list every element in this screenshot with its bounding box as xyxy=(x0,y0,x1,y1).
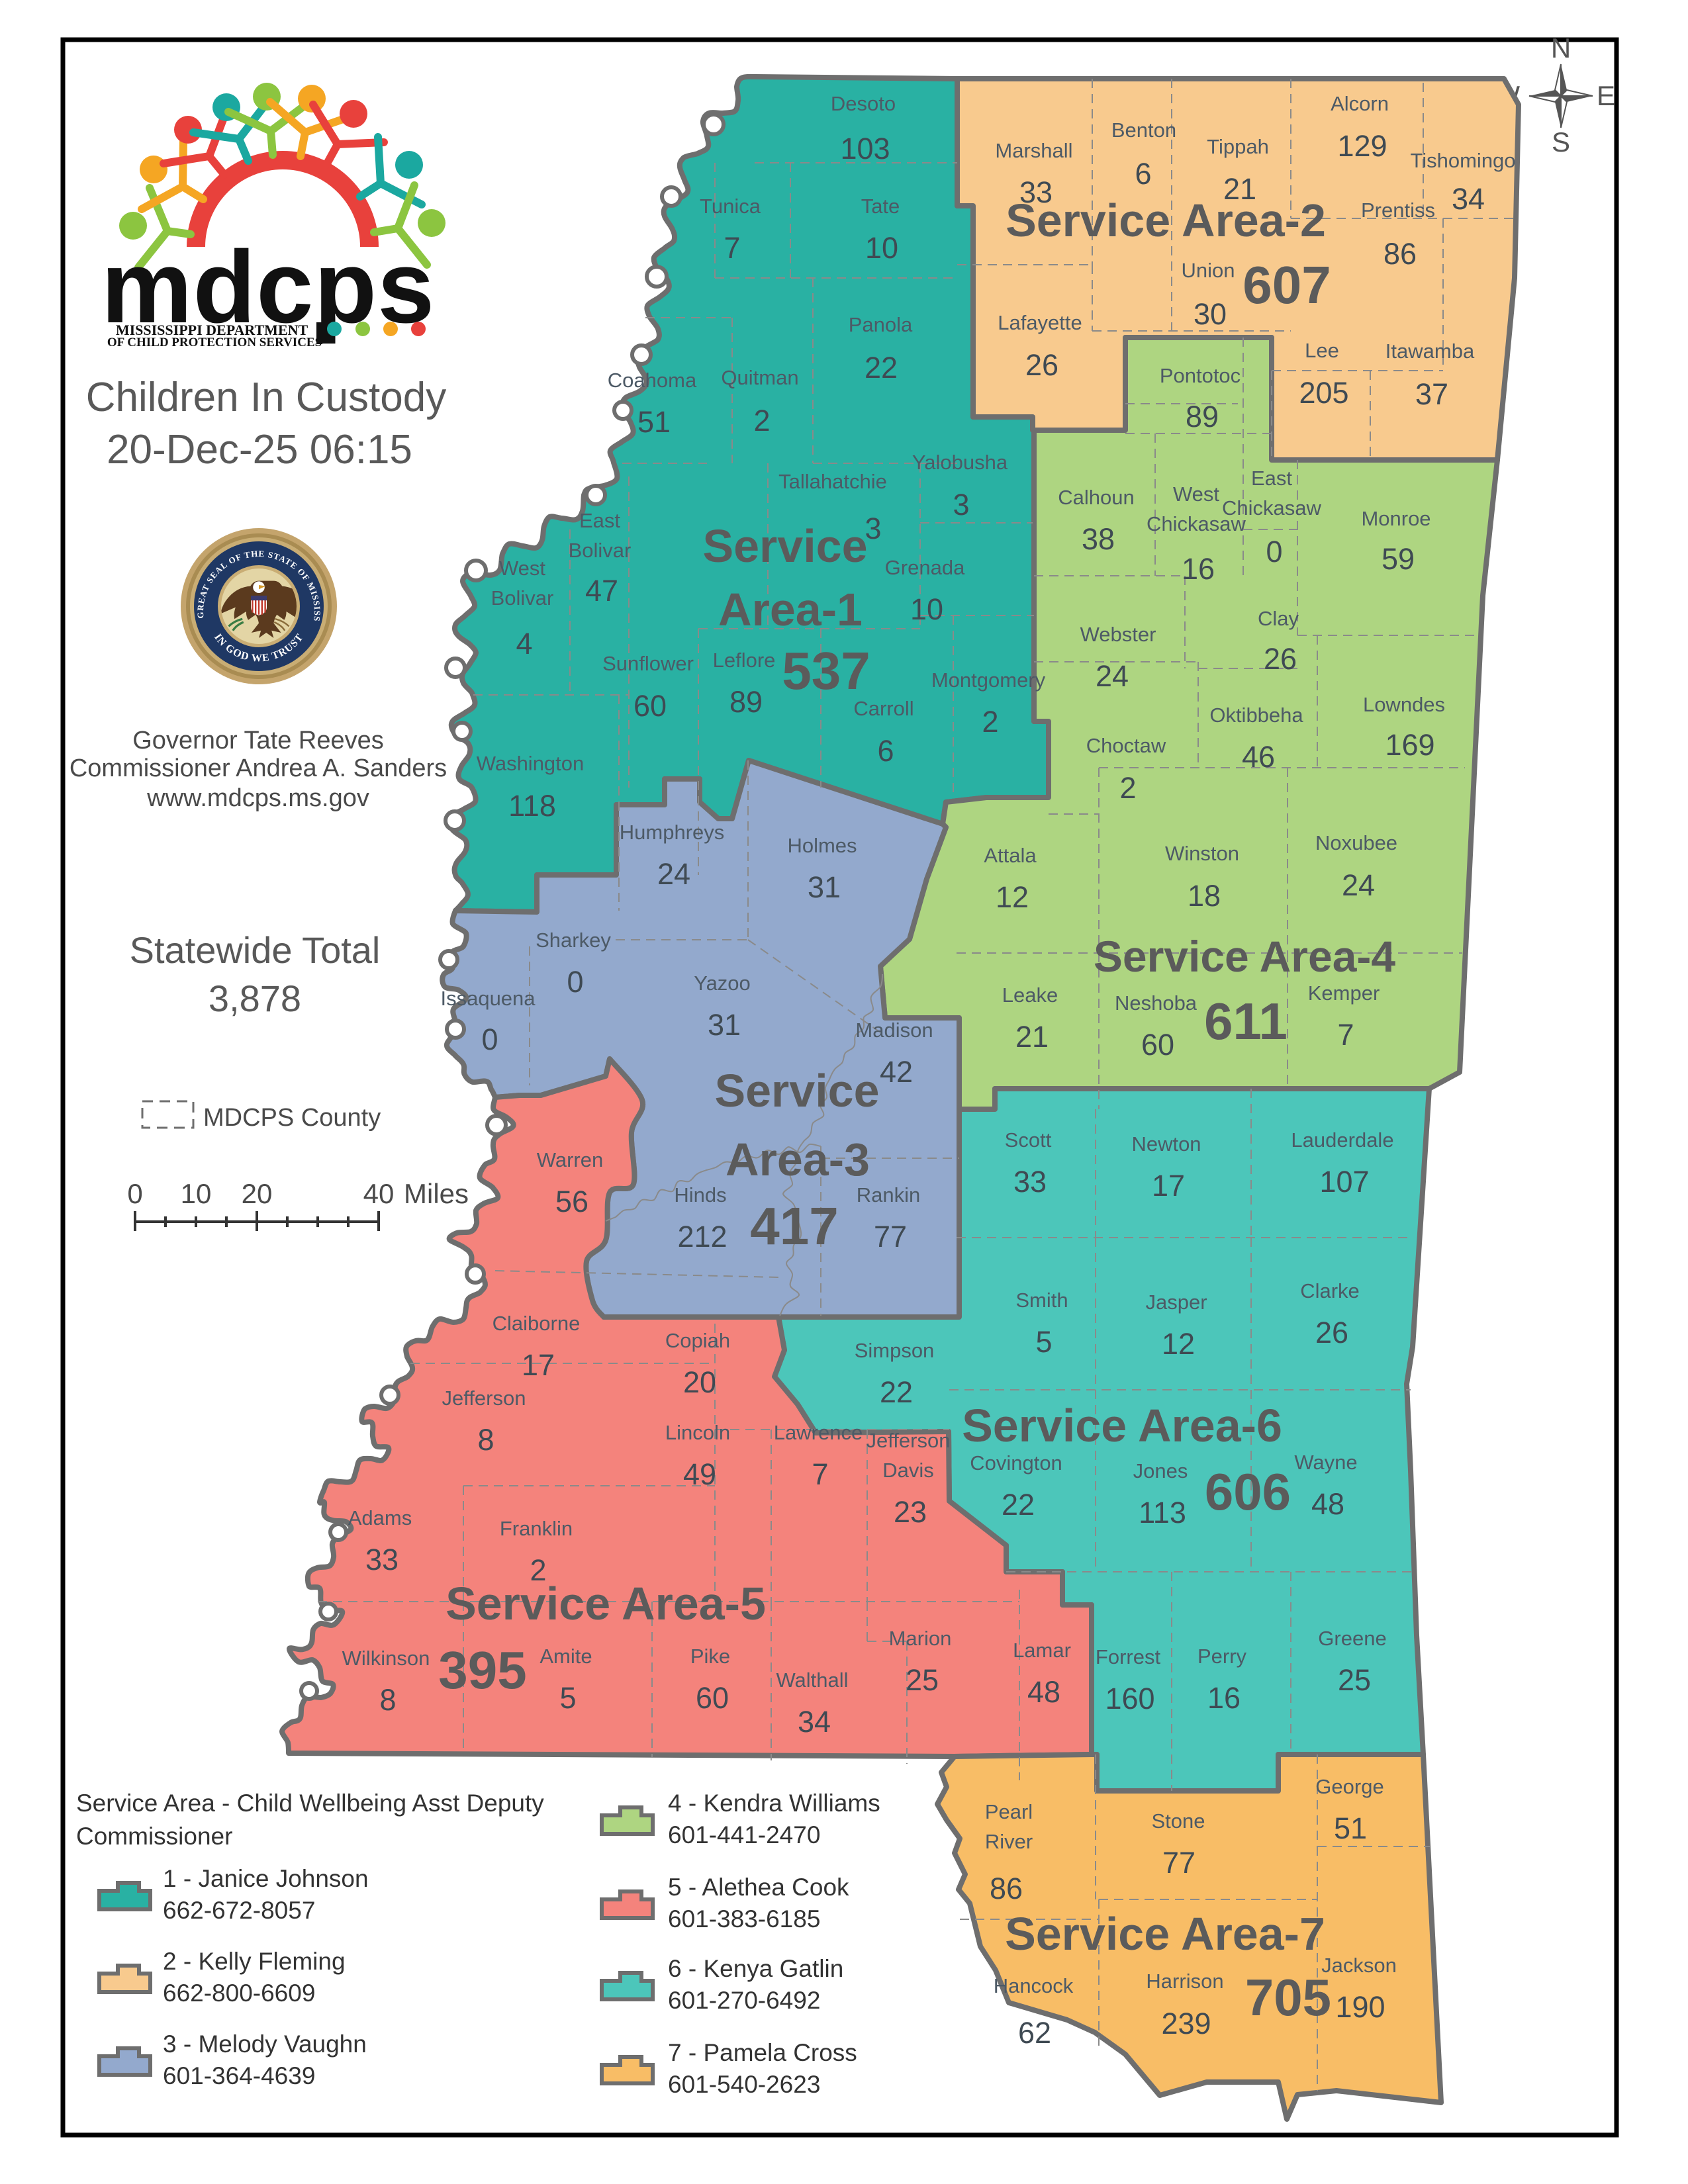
svg-text:20: 20 xyxy=(242,1178,273,1209)
svg-text:Pontotoc: Pontotoc xyxy=(1160,364,1241,387)
svg-text:51: 51 xyxy=(637,405,671,439)
svg-text:Rankin: Rankin xyxy=(857,1183,921,1206)
svg-text:601-540-2623: 601-540-2623 xyxy=(668,2071,820,2098)
svg-text:Service: Service xyxy=(714,1065,879,1116)
svg-text:Kemper: Kemper xyxy=(1308,981,1380,1005)
svg-text:17: 17 xyxy=(522,1348,555,1382)
svg-text:Pike: Pike xyxy=(690,1645,730,1668)
svg-text:40: 40 xyxy=(363,1178,395,1209)
svg-text:129: 129 xyxy=(1337,129,1387,163)
svg-text:E: E xyxy=(1597,80,1615,111)
svg-text:Lincoln: Lincoln xyxy=(665,1421,730,1444)
svg-text:20: 20 xyxy=(683,1365,716,1399)
svg-text:Itawamba: Itawamba xyxy=(1385,340,1475,363)
svg-text:12: 12 xyxy=(1162,1327,1195,1361)
svg-text:Webster: Webster xyxy=(1080,623,1156,646)
svg-text:Sharkey: Sharkey xyxy=(536,929,611,952)
svg-text:Commissioner Andrea A. Sanders: Commissioner Andrea A. Sanders xyxy=(70,754,447,782)
svg-text:Leflore: Leflore xyxy=(713,649,776,672)
svg-text:37: 37 xyxy=(1415,377,1448,411)
svg-text:25: 25 xyxy=(906,1663,939,1697)
svg-text:0: 0 xyxy=(127,1178,142,1209)
svg-text:49: 49 xyxy=(683,1457,716,1491)
svg-text:17: 17 xyxy=(1152,1169,1185,1203)
svg-text:Jones: Jones xyxy=(1133,1459,1188,1482)
svg-text:3,878: 3,878 xyxy=(209,978,301,1019)
svg-text:Statewide Total: Statewide Total xyxy=(130,929,381,971)
svg-text:5: 5 xyxy=(1035,1325,1052,1359)
svg-text:662-672-8057: 662-672-8057 xyxy=(163,1897,315,1924)
svg-text:48: 48 xyxy=(1027,1675,1060,1709)
svg-text:Sunflower: Sunflower xyxy=(602,652,694,675)
svg-text:Holmes: Holmes xyxy=(787,834,857,857)
svg-text:Oktibbeha: Oktibbeha xyxy=(1209,704,1303,727)
svg-text:18: 18 xyxy=(1188,879,1221,913)
svg-text:Lauderdale: Lauderdale xyxy=(1291,1128,1393,1152)
svg-text:Simpson: Simpson xyxy=(855,1339,935,1362)
svg-text:4: 4 xyxy=(516,627,532,660)
svg-text:26: 26 xyxy=(1264,642,1297,676)
svg-text:Hancock: Hancock xyxy=(994,1974,1074,1997)
svg-text:Newton: Newton xyxy=(1131,1132,1201,1156)
svg-text:Carroll: Carroll xyxy=(853,697,914,720)
svg-text:601-364-4639: 601-364-4639 xyxy=(163,2062,315,2089)
svg-text:3 - Melody Vaughn: 3 - Melody Vaughn xyxy=(163,2030,367,2058)
svg-text:22: 22 xyxy=(880,1375,913,1409)
svg-text:42: 42 xyxy=(880,1055,913,1089)
svg-text:24: 24 xyxy=(657,857,690,891)
svg-text:Claiborne: Claiborne xyxy=(492,1312,581,1335)
svg-text:8: 8 xyxy=(379,1683,396,1717)
svg-text:Miles: Miles xyxy=(404,1178,469,1209)
svg-text:607: 607 xyxy=(1243,255,1331,314)
svg-text:118: 118 xyxy=(508,789,556,823)
svg-text:East: East xyxy=(1251,467,1292,490)
svg-text:77: 77 xyxy=(1162,1846,1196,1880)
svg-text:Jackson: Jackson xyxy=(1321,1954,1397,1977)
svg-text:395: 395 xyxy=(438,1641,526,1700)
svg-text:24: 24 xyxy=(1342,868,1375,902)
svg-text:MDCPS County: MDCPS County xyxy=(203,1104,381,1132)
svg-text:705: 705 xyxy=(1245,1968,1331,2026)
svg-text:S: S xyxy=(1552,126,1570,158)
svg-text:190: 190 xyxy=(1335,1990,1385,2024)
svg-text:Grenada: Grenada xyxy=(885,556,965,579)
svg-text:10: 10 xyxy=(865,231,898,265)
svg-text:10: 10 xyxy=(181,1178,212,1209)
svg-text:Service Area - Child Wellbeing: Service Area - Child Wellbeing Asst Depu… xyxy=(76,1790,544,1817)
svg-text:22: 22 xyxy=(865,351,898,385)
svg-text:47: 47 xyxy=(585,574,618,608)
svg-text:Wilkinson: Wilkinson xyxy=(342,1647,430,1670)
svg-text:Franklin: Franklin xyxy=(500,1517,573,1540)
svg-text:Forrest: Forrest xyxy=(1096,1645,1161,1668)
svg-text:0: 0 xyxy=(481,1023,498,1056)
svg-text:Benton: Benton xyxy=(1111,118,1176,142)
svg-text:86: 86 xyxy=(990,1872,1023,1905)
svg-text:34: 34 xyxy=(798,1705,831,1739)
svg-text:West: West xyxy=(1173,482,1219,506)
svg-text:601-270-6492: 601-270-6492 xyxy=(668,1987,820,2014)
svg-text:George: George xyxy=(1315,1775,1383,1798)
svg-text:6: 6 xyxy=(877,734,894,768)
svg-text:Service Area-5: Service Area-5 xyxy=(445,1578,766,1629)
svg-text:Quitman: Quitman xyxy=(721,366,798,389)
svg-text:Leake: Leake xyxy=(1002,983,1058,1007)
svg-text:Warren: Warren xyxy=(537,1148,603,1171)
svg-text:Bolivar: Bolivar xyxy=(569,539,632,562)
svg-text:Yazoo: Yazoo xyxy=(694,972,751,995)
svg-text:Madison: Madison xyxy=(855,1019,933,1042)
svg-text:212: 212 xyxy=(677,1220,727,1253)
svg-text:Winston: Winston xyxy=(1165,842,1239,865)
svg-text:Jefferson: Jefferson xyxy=(867,1429,951,1452)
svg-text:33: 33 xyxy=(1013,1165,1047,1199)
svg-text:611: 611 xyxy=(1204,992,1288,1050)
svg-text:Tate: Tate xyxy=(861,195,900,218)
svg-text:West: West xyxy=(499,557,545,580)
svg-text:Service Area-6: Service Area-6 xyxy=(962,1400,1282,1451)
svg-text:239: 239 xyxy=(1161,2007,1211,2040)
svg-text:Amite: Amite xyxy=(539,1645,592,1668)
svg-text:113: 113 xyxy=(1139,1496,1186,1529)
svg-text:62: 62 xyxy=(1018,2016,1051,2050)
svg-text:103: 103 xyxy=(840,132,890,165)
svg-text:7: 7 xyxy=(812,1457,828,1491)
svg-text:60: 60 xyxy=(633,689,667,723)
svg-text:Scott: Scott xyxy=(1005,1128,1052,1152)
svg-text:16: 16 xyxy=(1182,552,1215,586)
svg-text:Tallahatchie: Tallahatchie xyxy=(778,470,887,493)
svg-text:Noxubee: Noxubee xyxy=(1315,831,1397,854)
svg-text:Service Area-7: Service Area-7 xyxy=(1005,1908,1325,1960)
svg-text:10: 10 xyxy=(910,592,943,626)
svg-text:48: 48 xyxy=(1311,1487,1344,1521)
svg-text:56: 56 xyxy=(555,1185,588,1218)
svg-text:417: 417 xyxy=(750,1197,838,1255)
svg-text:Lafayette: Lafayette xyxy=(998,311,1082,334)
svg-text:Tunica: Tunica xyxy=(700,195,761,218)
svg-text:Area-1: Area-1 xyxy=(718,584,863,635)
svg-text:6 - Kenya Gatlin: 6 - Kenya Gatlin xyxy=(668,1955,843,1982)
svg-text:31: 31 xyxy=(808,870,841,904)
svg-text:Clay: Clay xyxy=(1258,607,1299,630)
svg-text:Marion: Marion xyxy=(889,1627,952,1650)
svg-text:38: 38 xyxy=(1082,522,1115,556)
svg-text:25: 25 xyxy=(1338,1663,1371,1697)
svg-text:Commissioner: Commissioner xyxy=(76,1823,232,1850)
svg-text:Lawrence: Lawrence xyxy=(774,1421,863,1444)
svg-text:107: 107 xyxy=(1319,1165,1369,1199)
svg-text:Neshoba: Neshoba xyxy=(1115,991,1197,1015)
svg-text:Humphreys: Humphreys xyxy=(620,821,725,844)
svg-text:Governor Tate Reeves: Governor Tate Reeves xyxy=(132,727,384,754)
svg-text:7: 7 xyxy=(1337,1018,1354,1052)
svg-text:Tippah: Tippah xyxy=(1207,135,1269,158)
svg-text:5 - Alethea Cook: 5 - Alethea Cook xyxy=(668,1874,849,1901)
svg-text:Pearl: Pearl xyxy=(985,1800,1033,1823)
svg-text:Yalobusha: Yalobusha xyxy=(912,451,1008,474)
svg-text:Coahoma: Coahoma xyxy=(608,369,697,392)
svg-text:Calhoun: Calhoun xyxy=(1058,486,1134,509)
svg-text:169: 169 xyxy=(1385,728,1434,762)
svg-text:Stone: Stone xyxy=(1151,1809,1205,1833)
svg-text:5: 5 xyxy=(559,1681,576,1715)
svg-text:Adams: Adams xyxy=(348,1506,412,1529)
svg-text:Desoto: Desoto xyxy=(831,92,896,115)
svg-text:1 - Janice Johnson: 1 - Janice Johnson xyxy=(163,1865,369,1892)
svg-text:Lee: Lee xyxy=(1305,339,1339,362)
svg-text:20-Dec-25 06:15: 20-Dec-25 06:15 xyxy=(107,427,412,473)
svg-text:77: 77 xyxy=(874,1220,907,1253)
svg-text:60: 60 xyxy=(696,1681,729,1715)
svg-text:Chickasaw: Chickasaw xyxy=(1222,496,1321,520)
svg-text:51: 51 xyxy=(1334,1811,1367,1845)
svg-text:Lamar: Lamar xyxy=(1013,1639,1071,1662)
svg-text:Service Area-2: Service Area-2 xyxy=(1006,195,1326,246)
svg-text:East: East xyxy=(579,509,620,532)
svg-text:12: 12 xyxy=(996,880,1029,914)
svg-text:34: 34 xyxy=(1452,182,1485,216)
svg-text:OF CHILD PROTECTION SERVICES: OF CHILD PROTECTION SERVICES xyxy=(107,336,322,349)
svg-text:24: 24 xyxy=(1096,659,1129,693)
svg-text:Tishomingo: Tishomingo xyxy=(1410,149,1515,172)
svg-text:Smith: Smith xyxy=(1015,1289,1068,1312)
svg-text:Hinds: Hinds xyxy=(674,1183,726,1206)
svg-text:Washington: Washington xyxy=(477,752,585,775)
svg-text:Service Area-4: Service Area-4 xyxy=(1094,932,1395,981)
svg-text:0: 0 xyxy=(1266,535,1282,569)
svg-text:2: 2 xyxy=(753,404,770,437)
svg-text:86: 86 xyxy=(1383,237,1417,271)
svg-text:16: 16 xyxy=(1207,1681,1241,1715)
svg-text:Clarke: Clarke xyxy=(1300,1279,1360,1302)
svg-text:Marshall: Marshall xyxy=(995,139,1072,162)
svg-text:N: N xyxy=(1551,32,1571,64)
svg-text:26: 26 xyxy=(1025,348,1058,382)
svg-text:60: 60 xyxy=(1141,1028,1174,1062)
svg-text:Covington: Covington xyxy=(970,1451,1062,1475)
svg-text:8: 8 xyxy=(477,1423,494,1457)
svg-text:59: 59 xyxy=(1382,542,1415,576)
svg-text:606: 606 xyxy=(1205,1463,1291,1521)
svg-text:Union: Union xyxy=(1182,259,1235,282)
svg-text:31: 31 xyxy=(708,1008,741,1042)
svg-text:7: 7 xyxy=(724,231,740,265)
svg-text:River: River xyxy=(985,1830,1033,1853)
svg-text:205: 205 xyxy=(1299,376,1348,410)
svg-text:662-800-6609: 662-800-6609 xyxy=(163,1979,315,2007)
svg-text:Prentiss: Prentiss xyxy=(1361,199,1435,222)
svg-text:2 - Kelly Fleming: 2 - Kelly Fleming xyxy=(163,1948,346,1975)
svg-text:Bolivar: Bolivar xyxy=(491,586,554,610)
svg-text:601-383-6185: 601-383-6185 xyxy=(668,1905,820,1933)
svg-text:33: 33 xyxy=(365,1543,399,1576)
svg-text:Service: Service xyxy=(702,520,867,572)
svg-text:Wayne: Wayne xyxy=(1294,1451,1357,1474)
svg-text:Montgomery: Montgomery xyxy=(931,668,1046,692)
svg-text:Walthall: Walthall xyxy=(776,1668,848,1692)
svg-text:Children In Custody: Children In Custody xyxy=(86,375,447,420)
svg-text:26: 26 xyxy=(1315,1316,1348,1349)
svg-text:601-441-2470: 601-441-2470 xyxy=(668,1821,820,1848)
svg-text:22: 22 xyxy=(1002,1488,1035,1522)
svg-text:30: 30 xyxy=(1194,297,1227,331)
svg-text:Harrison: Harrison xyxy=(1146,1970,1223,1993)
svg-text:2: 2 xyxy=(1119,771,1136,805)
svg-text:Choctaw: Choctaw xyxy=(1086,734,1166,757)
svg-text:89: 89 xyxy=(1186,400,1219,433)
svg-text:Area-3: Area-3 xyxy=(726,1134,870,1185)
svg-text:3: 3 xyxy=(953,488,969,522)
svg-text:46: 46 xyxy=(1242,740,1275,774)
svg-text:Davis: Davis xyxy=(882,1459,934,1482)
svg-text:537: 537 xyxy=(782,641,870,700)
svg-text:Lowndes: Lowndes xyxy=(1363,693,1445,716)
svg-text:0: 0 xyxy=(567,965,583,999)
svg-text:Perry: Perry xyxy=(1197,1645,1247,1668)
svg-text:21: 21 xyxy=(1015,1020,1049,1054)
svg-text:89: 89 xyxy=(729,685,763,719)
svg-text:2: 2 xyxy=(982,705,998,739)
svg-text:160: 160 xyxy=(1105,1682,1154,1715)
svg-text:Jasper: Jasper xyxy=(1145,1291,1207,1314)
svg-text:Attala: Attala xyxy=(984,844,1037,867)
svg-text:Copiah: Copiah xyxy=(665,1329,730,1352)
svg-text:Panola: Panola xyxy=(849,313,913,336)
svg-text:Alcorn: Alcorn xyxy=(1331,92,1389,115)
svg-text:7 - Pamela Cross: 7 - Pamela Cross xyxy=(668,2039,857,2066)
svg-text:4 - Kendra Williams: 4 - Kendra Williams xyxy=(668,1790,880,1817)
svg-text:Greene: Greene xyxy=(1318,1627,1386,1650)
svg-text:Issaquena: Issaquena xyxy=(440,987,536,1010)
svg-text:Jefferson: Jefferson xyxy=(442,1387,526,1410)
svg-text:23: 23 xyxy=(894,1495,927,1529)
svg-text:Monroe: Monroe xyxy=(1361,507,1430,530)
svg-text:www.mdcps.ms.gov: www.mdcps.ms.gov xyxy=(146,784,369,812)
svg-text:6: 6 xyxy=(1135,157,1151,191)
